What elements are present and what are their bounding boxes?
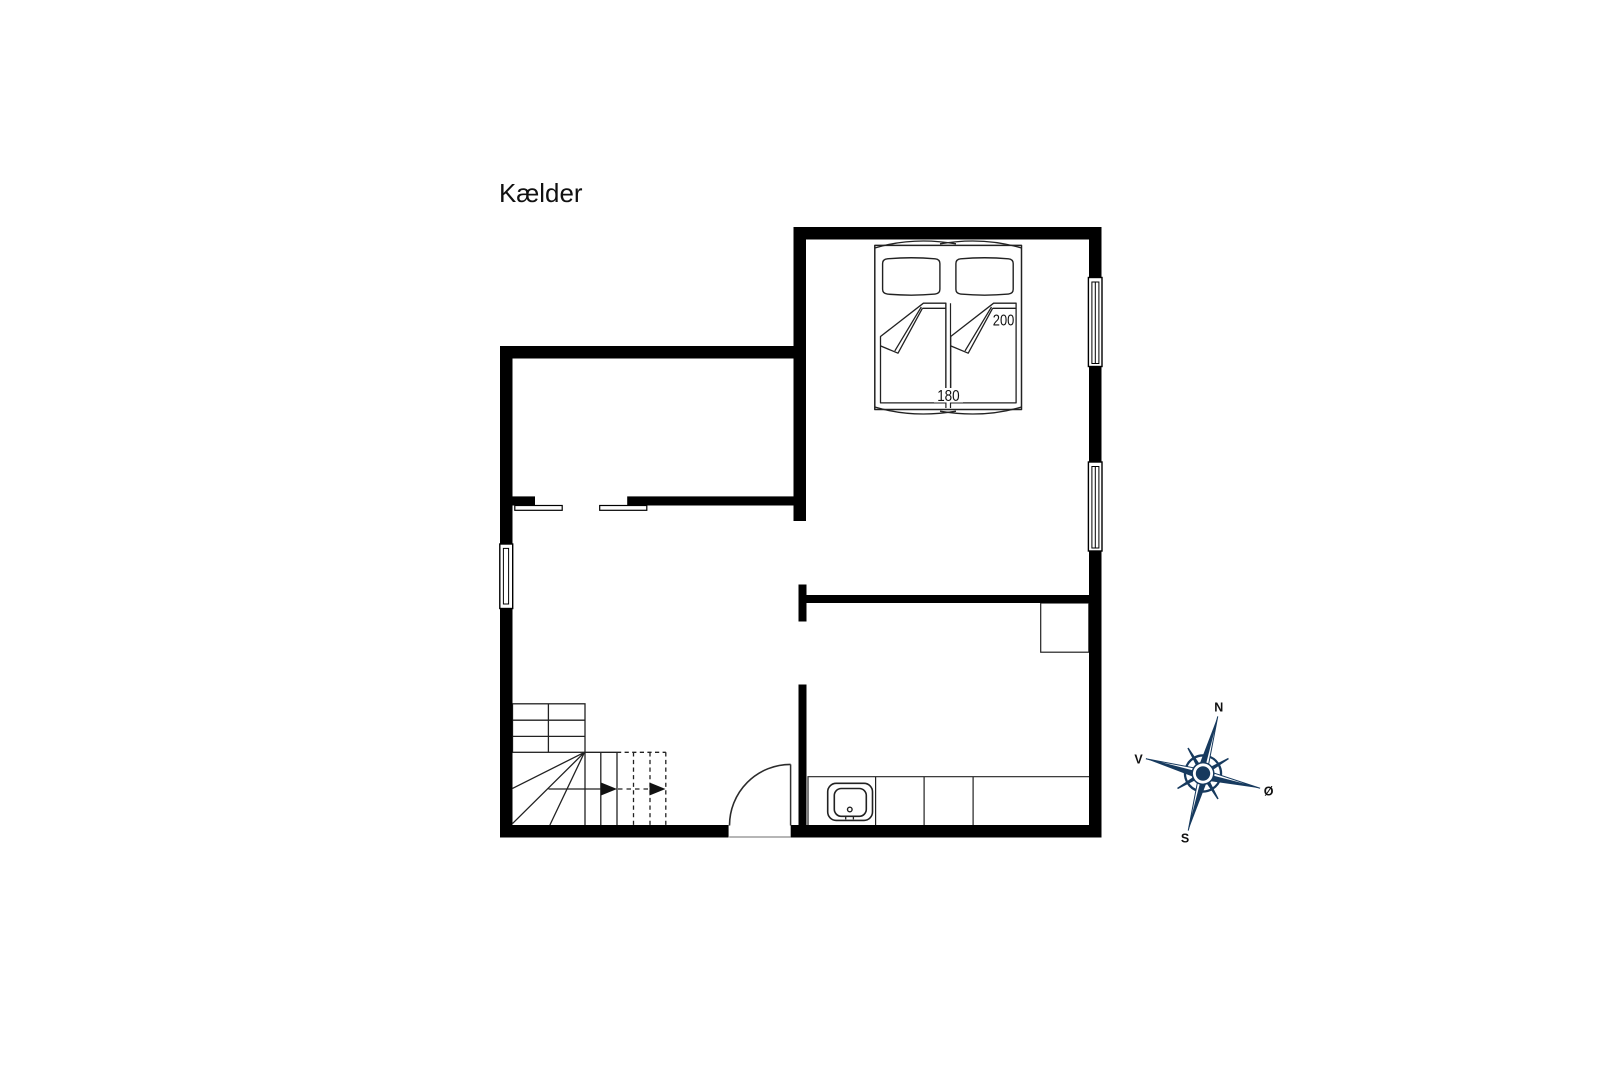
svg-text:S: S [1181, 832, 1189, 846]
svg-text:Ø: Ø [1264, 784, 1274, 798]
svg-text:V: V [1134, 753, 1143, 767]
svg-text:Kælder: Kælder [499, 178, 583, 208]
svg-text:200: 200 [993, 313, 1015, 330]
svg-text:N: N [1214, 701, 1223, 715]
svg-text:180: 180 [937, 388, 960, 405]
